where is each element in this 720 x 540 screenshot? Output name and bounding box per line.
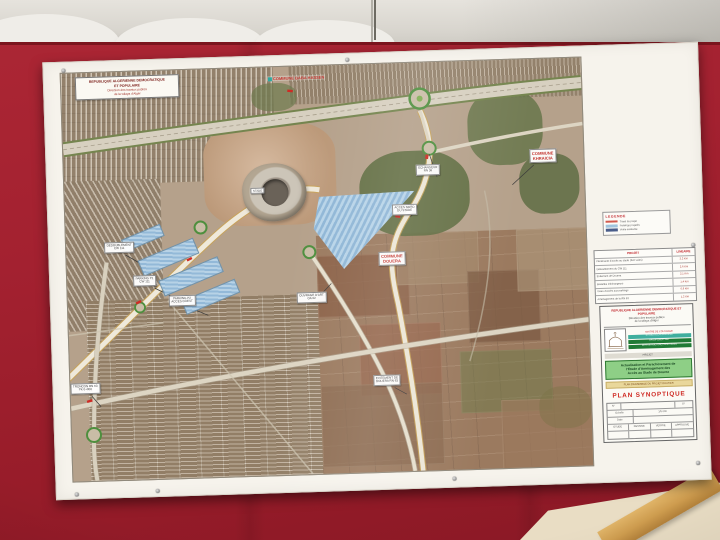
- table-cell-label: Aménagement de la RN 63: [596, 295, 673, 302]
- dtp-logo: [603, 329, 626, 353]
- tent-fabric: [0, 0, 720, 44]
- title-block-logo-row: MAITRE DE L'OUVRAGE ETUDES & ENGINEERING…: [603, 327, 691, 353]
- label-commune-douera: COMMUNE DOUERA: [378, 251, 405, 265]
- legend-swatch-dark: [606, 229, 618, 232]
- commune-name: DOUERA: [381, 258, 403, 264]
- side-panel: LEGENDE Tracé du projet Parkings projeté…: [585, 51, 702, 476]
- title-block-form: N° 07 Echelle 1/5 000 Date ETUDE DES: [606, 400, 694, 440]
- map-callout: TRONCON RN 63PK 0+000: [70, 383, 100, 394]
- mounting-screw: [696, 461, 700, 465]
- table-cell-value: 2,1 Km: [672, 271, 695, 278]
- tent-seam: [371, 0, 373, 44]
- label-commune-khraicia: COMMUNE KHRAICIA: [529, 148, 556, 162]
- legend-label: Parkings projetés: [620, 224, 640, 228]
- map-title-box: REPUBLIQUE ALGERIENNE DEMOCRATIQUE ET PO…: [75, 74, 180, 100]
- callout-text: DOUERA RN 63: [376, 380, 398, 384]
- callout-text: CW 111: [107, 247, 132, 252]
- mosque-sketch-icon: [604, 330, 625, 352]
- table-cell-value: 2,6 Km: [672, 263, 695, 270]
- poster: REPUBLIQUE ALGERIENNE DEMOCRATIQUE ET PO…: [42, 42, 711, 500]
- map-callout: OUVRAGE D'ARTOA 02: [297, 292, 327, 303]
- project-table: PROJET LINEAIRE Pénétrante d'accès au st…: [593, 247, 697, 304]
- callout-text: CW 111: [136, 280, 154, 284]
- commune-name: KHRAICIA: [532, 155, 554, 161]
- mounting-screw: [156, 489, 160, 493]
- org-bar-green: INFRASTRUCTURES ROUTIERES: [628, 343, 691, 349]
- table-cell-value: 1,4 Km: [672, 278, 695, 285]
- sig-header: APPROUVE: [671, 422, 693, 429]
- table-cell-value: 3,2 Km: [672, 256, 695, 263]
- sig-cell: [671, 429, 693, 437]
- sheet-number: 07: [674, 401, 692, 408]
- label-stade: STADE: [250, 187, 264, 194]
- table-cell-value: 1,2 Km: [673, 293, 696, 300]
- map-callout: DEDOUBLEMENTCW 111: [104, 242, 134, 253]
- legend-item: Voirie existante: [606, 227, 668, 232]
- callout-text: PK 0+000: [73, 388, 98, 393]
- table-header-lineaire: LINEAIRE: [671, 248, 694, 255]
- map-callout: EVITEMENT DEDOUERA RN 63: [373, 374, 400, 385]
- satellite-map: REPUBLIQUE ALGERIENNE DEMOCRATIQUE ET PO…: [60, 56, 595, 482]
- map-callout: ECHANGEURRN 36: [416, 164, 440, 175]
- callout-text: ACCES OUEST: [171, 300, 193, 304]
- mounting-screw: [345, 58, 349, 62]
- plan-synoptique-title: PLAN SYNOPTIQUE: [605, 390, 692, 400]
- sig-cell: [628, 430, 650, 438]
- legend-swatch-red: [606, 220, 618, 223]
- mounting-screw: [452, 477, 456, 481]
- tent-shadow: [460, 0, 720, 44]
- map-callout: PARKING P2ACCES OUEST: [169, 295, 196, 306]
- legend-label: Voirie existante: [620, 228, 638, 232]
- map-callout: ACCES NORDDU STADE: [392, 204, 417, 215]
- study-title-box: Actualisation et Parachèvement de l'Etud…: [604, 358, 692, 380]
- photo-scene: REPUBLIQUE ALGERIENNE DEMOCRATIQUE ET PO…: [0, 0, 720, 540]
- title-block: REPUBLIQUE ALGERIENNE DEMOCRATIQUE ET PO…: [599, 303, 697, 443]
- sig-cell: [650, 429, 672, 437]
- hanging-cable: [374, 0, 376, 40]
- map-callout: PARKING P1CW 111: [133, 275, 156, 286]
- sig-header: VERIFIE: [649, 422, 671, 429]
- sig-cell: [608, 431, 629, 439]
- date-label: Date: [607, 417, 632, 424]
- callout-text: OA 02: [299, 297, 324, 302]
- number-label: N°: [607, 403, 620, 409]
- mounting-screw: [75, 492, 79, 496]
- legend-box: LEGENDE Tracé du projet Parkings projeté…: [602, 210, 671, 236]
- callout-text: DU STADE: [395, 209, 415, 213]
- sig-header: ETUDE: [607, 424, 628, 431]
- subtitle-strip: PLAN D'ENSEMBLE DU PROJET ROUTIER: [605, 379, 692, 389]
- legend-label: Tracé du projet: [620, 219, 637, 223]
- callout-text: RN 36: [418, 169, 437, 173]
- table-cell-value: 0,9 Km: [673, 285, 696, 292]
- sig-header: DESSINE: [628, 423, 650, 430]
- project-roads: [61, 110, 440, 481]
- legend-swatch-blue: [606, 225, 618, 228]
- legend-chip-icon: [268, 77, 272, 81]
- existing-roads: [62, 105, 593, 481]
- title-block-org-column: MAITRE DE L'OUVRAGE ETUDES & ENGINEERING…: [627, 327, 691, 352]
- scale-label: Echelle: [607, 410, 632, 417]
